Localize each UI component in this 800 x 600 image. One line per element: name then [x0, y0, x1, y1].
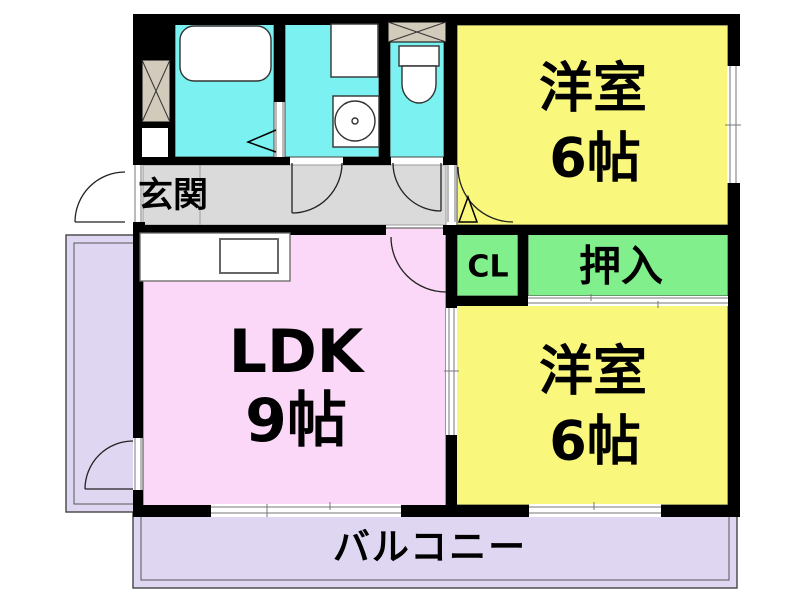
wall-ldk-bedroom-lower	[446, 435, 457, 507]
wall-ldk-left-lower	[133, 490, 143, 507]
wall-corridor-top-1	[133, 157, 290, 165]
bedroom-top-name: 洋室	[539, 57, 647, 120]
side-balcony-floor	[66, 235, 137, 512]
ldk-name: LDK	[229, 317, 366, 387]
window-bedroom-top-right	[725, 66, 741, 183]
wall-corridor-bottom-2	[443, 225, 740, 235]
wall-bottom-right	[661, 505, 740, 517]
bedroom-bottom-name: 洋室	[539, 340, 647, 403]
kitchen-sink-icon	[220, 239, 278, 273]
wall-corridor-top-2	[343, 157, 391, 165]
window-bedroom-bottom	[529, 502, 661, 517]
floor-plan-canvas: 洋室 6帖 洋室 6帖 LDK 9帖 CL 押入 玄関 バルコニー	[0, 0, 800, 600]
sliding-partition-ldk-bedroom	[444, 308, 459, 435]
floor-plan: 洋室 6帖 洋室 6帖 LDK 9帖 CL 押入 玄関 バルコニー	[0, 0, 800, 600]
window-gap	[529, 504, 661, 517]
toilet-tank-icon	[399, 46, 439, 66]
side-balcony	[66, 235, 137, 512]
bedroom-top-floor	[457, 25, 728, 225]
washbasin-drain-icon	[352, 118, 358, 124]
wall-corridor-top-3	[443, 157, 457, 165]
bedroom-bottom-floor	[446, 300, 728, 505]
wall-closet-bottom	[446, 296, 528, 306]
wall-bath-washroom	[274, 14, 285, 102]
bedroom-top-size: 6帖	[549, 127, 641, 190]
wall-closet-oshiire	[518, 233, 528, 298]
ldk-size: 9帖	[245, 386, 347, 456]
wall-ldk-bedroom-upper	[446, 225, 457, 308]
window-gap	[211, 504, 401, 517]
window-ldk-bottom	[211, 502, 401, 517]
washing-machine-space-icon	[331, 24, 378, 77]
bedroom-bottom-size: 6帖	[549, 410, 641, 473]
closet-label: CL	[467, 250, 508, 285]
bathtub-icon	[180, 26, 271, 81]
balcony-label: バルコニー	[333, 526, 527, 569]
toilet-bowl-icon	[402, 66, 436, 103]
fusuma-oshiire	[528, 294, 728, 308]
wall-bottom-center	[401, 505, 529, 517]
wall-bottom-left	[133, 505, 211, 517]
entrance-label: 玄関	[138, 176, 208, 216]
utility-niche	[142, 128, 168, 157]
oshiire-label: 押入	[579, 242, 663, 291]
